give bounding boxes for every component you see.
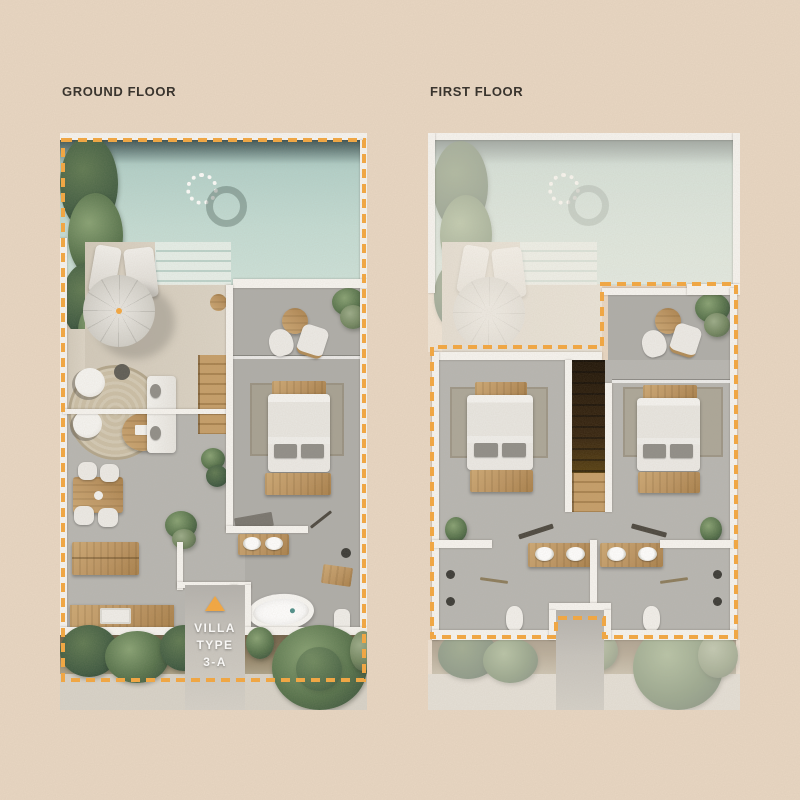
ground-floor-label: GROUND FLOOR: [62, 84, 176, 99]
wall: [660, 540, 733, 548]
bed-bench-icon: [638, 472, 700, 493]
sink-icon: [607, 547, 626, 561]
toilet-icon: [506, 606, 523, 631]
bed-headboard: [272, 381, 326, 395]
bed-headboard: [475, 382, 527, 396]
ground-floor-plan: VILLA TYPE 3-A: [60, 133, 367, 710]
wall: [432, 352, 439, 640]
villa-line-2: TYPE: [181, 637, 249, 654]
bed-icon: [268, 394, 330, 472]
wall: [428, 133, 740, 140]
first-floor-label: FIRST FLOOR: [430, 84, 523, 99]
pool-float-shadow: [206, 186, 247, 227]
wall: [432, 540, 492, 548]
wall: [549, 603, 611, 610]
entry-path: [556, 610, 604, 710]
shower-fixture-icon: [713, 570, 722, 579]
wall: [226, 526, 308, 533]
bed-icon: [467, 395, 533, 470]
bed-bench-icon: [265, 473, 331, 495]
wall: [565, 360, 572, 512]
pool-steps: [155, 242, 231, 285]
wall: [226, 285, 233, 530]
side-table-icon: [210, 294, 227, 311]
wall: [549, 610, 556, 640]
sink-icon: [638, 547, 657, 561]
sofa-icon: [147, 376, 176, 453]
wall: [733, 133, 740, 293]
lower-level-fade: [428, 133, 602, 352]
dining-chair-icon: [74, 506, 94, 525]
wall: [604, 630, 737, 640]
stair-landing: [572, 473, 605, 512]
wall: [60, 133, 367, 140]
sink-icon: [566, 547, 585, 561]
villa-type-marker: VILLA TYPE 3-A: [181, 620, 249, 671]
wall: [605, 383, 612, 512]
shower-fixture-icon: [713, 597, 722, 606]
wall: [730, 288, 737, 640]
side-table-icon: [114, 364, 130, 380]
sink-icon: [535, 547, 554, 561]
shower-fixture-icon: [446, 570, 455, 579]
wall: [60, 238, 67, 640]
first-floor-plan: [428, 133, 740, 710]
wall: [63, 409, 229, 414]
wall: [432, 352, 602, 360]
wall: [428, 133, 435, 293]
console-cabinet-icon: [72, 542, 139, 575]
shower-fixture-icon: [446, 597, 455, 606]
dining-chair-icon: [98, 508, 118, 527]
entry-arrow-icon: [205, 596, 225, 611]
sink-icon: [243, 537, 261, 550]
shower-drain-icon: [341, 548, 351, 558]
staircase: [198, 355, 226, 434]
bed-headboard: [643, 385, 697, 399]
wall: [432, 630, 556, 640]
bed-icon: [637, 398, 700, 471]
wall: [360, 140, 367, 640]
villa-line-1: VILLA: [181, 620, 249, 637]
lower-level-fade: [602, 133, 740, 284]
armchair-icon: [73, 410, 102, 438]
dining-chair-icon: [100, 464, 119, 482]
kitchen-counter-icon: [70, 605, 174, 627]
armchair-icon: [75, 368, 105, 397]
wall: [233, 279, 367, 288]
sliding-door-line: [233, 356, 360, 359]
dining-chair-icon: [78, 462, 97, 480]
bed-bench-icon: [470, 470, 533, 492]
sink-icon: [265, 537, 283, 550]
bath-shelf-icon: [321, 564, 353, 587]
umbrella-icon: [83, 275, 155, 347]
wall: [604, 610, 611, 640]
toilet-icon: [643, 606, 660, 631]
floorplan-sheet: GROUND FLOOR FIRST FLOOR: [0, 0, 800, 800]
sliding-door-line: [612, 380, 730, 383]
villa-line-3: 3-A: [181, 654, 249, 671]
